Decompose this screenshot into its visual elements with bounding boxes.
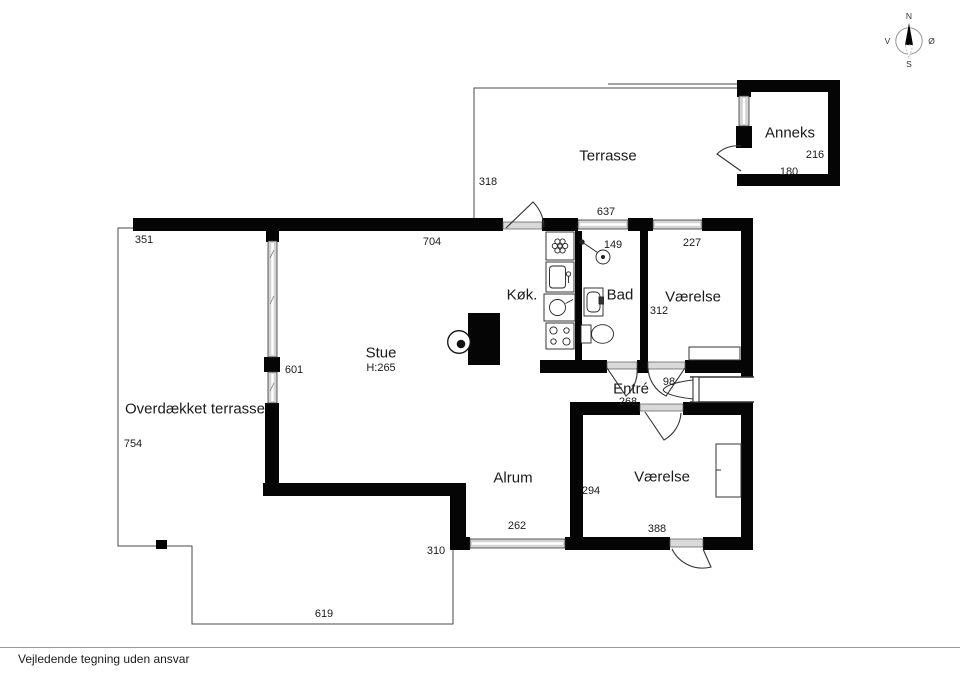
room-label-entre: Entré — [613, 381, 649, 398]
vaerelse-exterior-door — [672, 549, 711, 568]
dim-terrasse-depth: 318 — [479, 176, 497, 188]
dim-west-wing-top: 351 — [135, 234, 153, 246]
kitchen-fixtures — [544, 232, 575, 349]
dim-overdaekket-depth: 754 — [124, 438, 142, 450]
room-label-bad: Bad — [607, 287, 634, 304]
wardrobe-top — [689, 347, 740, 360]
dim-anneks-width: 180 — [780, 166, 798, 178]
room-label-terrasse: Terrasse — [579, 148, 637, 165]
oven-icon — [544, 294, 575, 321]
dim-stue-window: 601 — [285, 364, 303, 376]
room-label-anneks: Anneks — [765, 125, 815, 142]
room-label-alrum: Alrum — [493, 470, 532, 487]
dim-vaerelse-bottom-depth: 294 — [582, 485, 600, 497]
wood-stove-icon — [448, 331, 471, 354]
dim-deck-depth: 310 — [427, 545, 445, 557]
dim-vaerelse-top-width: 227 — [683, 237, 701, 249]
room-label-stue: Stue — [366, 345, 397, 362]
dim-entre-width: 268 — [619, 396, 637, 408]
room-label-koekken: Køk. — [507, 287, 538, 304]
footer-divider — [0, 647, 960, 648]
dim-vaerelse-bottom-width: 388 — [648, 523, 666, 535]
compass-north-label: N — [906, 11, 912, 21]
vaerelse-bottom-door — [645, 412, 681, 440]
room-label-vaerelse-top: Værelse — [665, 289, 721, 306]
sink-icon — [546, 262, 574, 292]
stue-ceiling-height: H:265 — [366, 362, 395, 374]
toilet-icon — [581, 325, 614, 344]
anneks-door — [717, 146, 741, 171]
floor-plan-drawing: N Ø S V — [0, 0, 960, 679]
dim-vaerelse-top-depth: 312 — [650, 305, 668, 317]
compass-east-label: Ø — [928, 36, 935, 46]
compass-west-label: V — [885, 36, 891, 46]
dim-terrasse-width: 637 — [597, 206, 615, 218]
dim-alrum-window: 262 — [508, 520, 526, 532]
room-label-overdaekket-terrasse: Overdækket terrasse — [125, 401, 265, 418]
compass-icon: N Ø S V — [885, 11, 936, 69]
dim-anneks-depth: 216 — [806, 149, 824, 161]
extractor-icon — [546, 232, 574, 260]
disclaimer-text: Vejledende tegning uden ansvar — [18, 652, 189, 666]
dim-stue-width: 704 — [423, 236, 441, 248]
washbasin-icon — [584, 288, 604, 316]
dim-bad-width: 149 — [604, 239, 622, 251]
dim-entre-door: 98 — [663, 376, 675, 388]
cooktop-icon — [546, 323, 574, 349]
deck-outline — [118, 228, 453, 624]
floor-plan: N Ø S V Terrasse Anneks Køk. Bad Værelse… — [0, 0, 960, 679]
deck-post — [156, 540, 167, 549]
compass-south-label: S — [906, 59, 912, 69]
dim-deck-width: 619 — [315, 608, 333, 620]
room-label-vaerelse-bottom: Værelse — [634, 469, 690, 486]
